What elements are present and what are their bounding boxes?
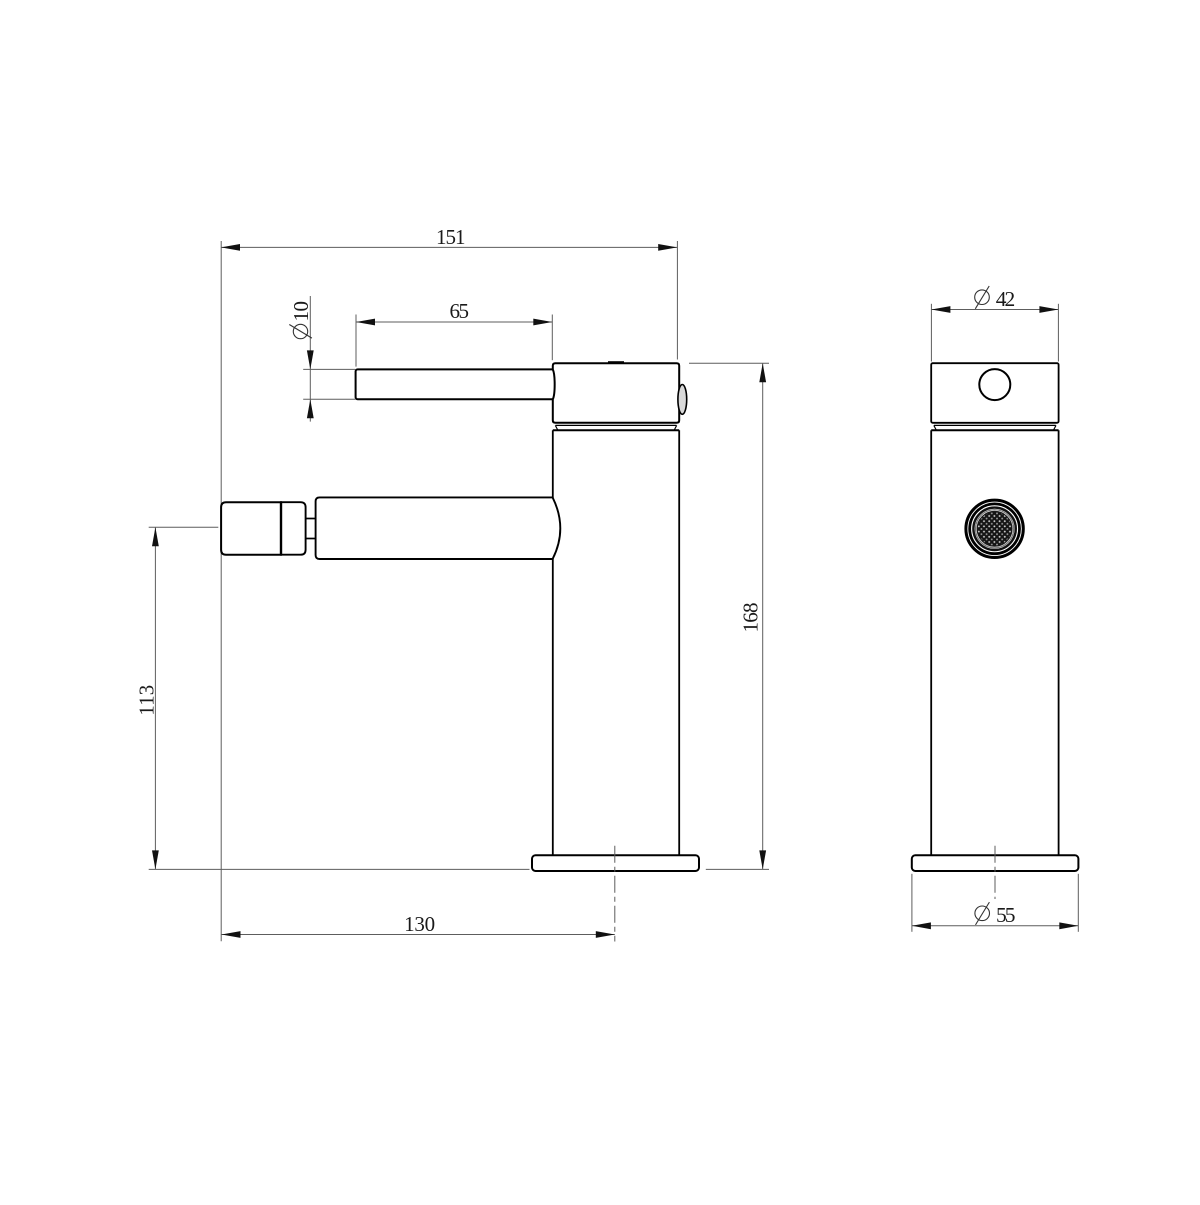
svg-text:168: 168	[738, 603, 762, 633]
svg-text:151: 151	[436, 225, 466, 249]
svg-text:65: 65	[450, 299, 470, 323]
svg-text:113: 113	[134, 685, 158, 716]
svg-text:10: 10	[289, 301, 313, 322]
svg-text:55: 55	[996, 903, 1016, 927]
svg-text:130: 130	[404, 912, 435, 936]
svg-text:42: 42	[996, 287, 1016, 311]
